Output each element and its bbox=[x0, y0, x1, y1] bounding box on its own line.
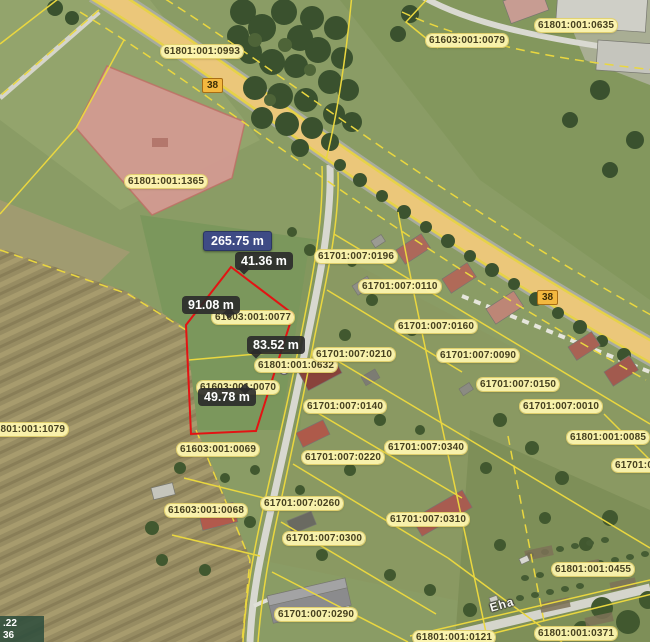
parcel-label: 61701:007:0196 bbox=[315, 250, 397, 263]
measure-value: 49.78 m bbox=[204, 390, 250, 404]
parcel-label: 61701:007:0220 bbox=[302, 451, 384, 464]
aerial-map bbox=[0, 0, 650, 642]
parcel-label: 61701:007:0160 bbox=[395, 320, 477, 333]
map-viewport[interactable]: 61801:001:0993 61603:001:0079 61801:001:… bbox=[0, 0, 650, 642]
measure-value: 83.52 m bbox=[253, 338, 299, 352]
parcel-label: 61701:007:0310 bbox=[387, 513, 469, 526]
parcel-label: 61701:007:0110 bbox=[359, 280, 441, 293]
parcel-label: 61801:001:0993 bbox=[161, 45, 243, 58]
parcel-label: 61801:001:1079 bbox=[0, 423, 68, 436]
measure-value: 41.36 m bbox=[241, 254, 287, 268]
measure-segment-label: 83.52 m bbox=[247, 336, 305, 354]
coords-readout: .22 36 bbox=[0, 616, 44, 642]
parcel-label: 61701:007:0140 bbox=[304, 400, 386, 413]
road-number-badge: 38 bbox=[202, 78, 223, 93]
parcel-label: 61801:001:0371 bbox=[535, 627, 617, 640]
parcel-label: 61801:001:0121 bbox=[413, 631, 495, 642]
parcel-label: 61701:007:0210 bbox=[313, 348, 395, 361]
parcel-label: 61801:001:1365 bbox=[125, 175, 207, 188]
parcel-label: 61701:007:0150 bbox=[477, 378, 559, 391]
parcel-label: 61701:007:0290 bbox=[275, 608, 357, 621]
parcel-label: 61701:007:0340 bbox=[385, 441, 467, 454]
zone-mark bbox=[152, 138, 168, 147]
coords-line2: 36 bbox=[3, 630, 41, 642]
parcel-label: 61701:007:0010 bbox=[520, 400, 602, 413]
parcel-label: 61701:007:0260 bbox=[261, 497, 343, 510]
measure-total-label: 265.75 m bbox=[203, 231, 272, 251]
parcel-label: 61701:007:0300 bbox=[283, 532, 365, 545]
parcel-label: 61701:007:0090 bbox=[437, 349, 519, 362]
parcel-label: 61701:00 bbox=[612, 459, 650, 472]
measure-segment-label: 91.08 m bbox=[182, 296, 240, 314]
parcel-label: 61603:001:0079 bbox=[426, 34, 508, 47]
coords-line1: .22 bbox=[3, 618, 41, 630]
parcel-label: 61801:001:0635 bbox=[535, 19, 617, 32]
measure-segment-label: 49.78 m bbox=[198, 388, 256, 406]
road-number-badge: 38 bbox=[537, 290, 558, 305]
parcel-label: 61801:001:0455 bbox=[552, 563, 634, 576]
measure-value: 91.08 m bbox=[188, 298, 234, 312]
parcel-label: 61801:001:0085 bbox=[567, 431, 649, 444]
parcel-label: 61603:001:0069 bbox=[177, 443, 259, 456]
parcel-label: 61603:001:0068 bbox=[165, 504, 247, 517]
measure-segment-label: 41.36 m bbox=[235, 252, 293, 270]
